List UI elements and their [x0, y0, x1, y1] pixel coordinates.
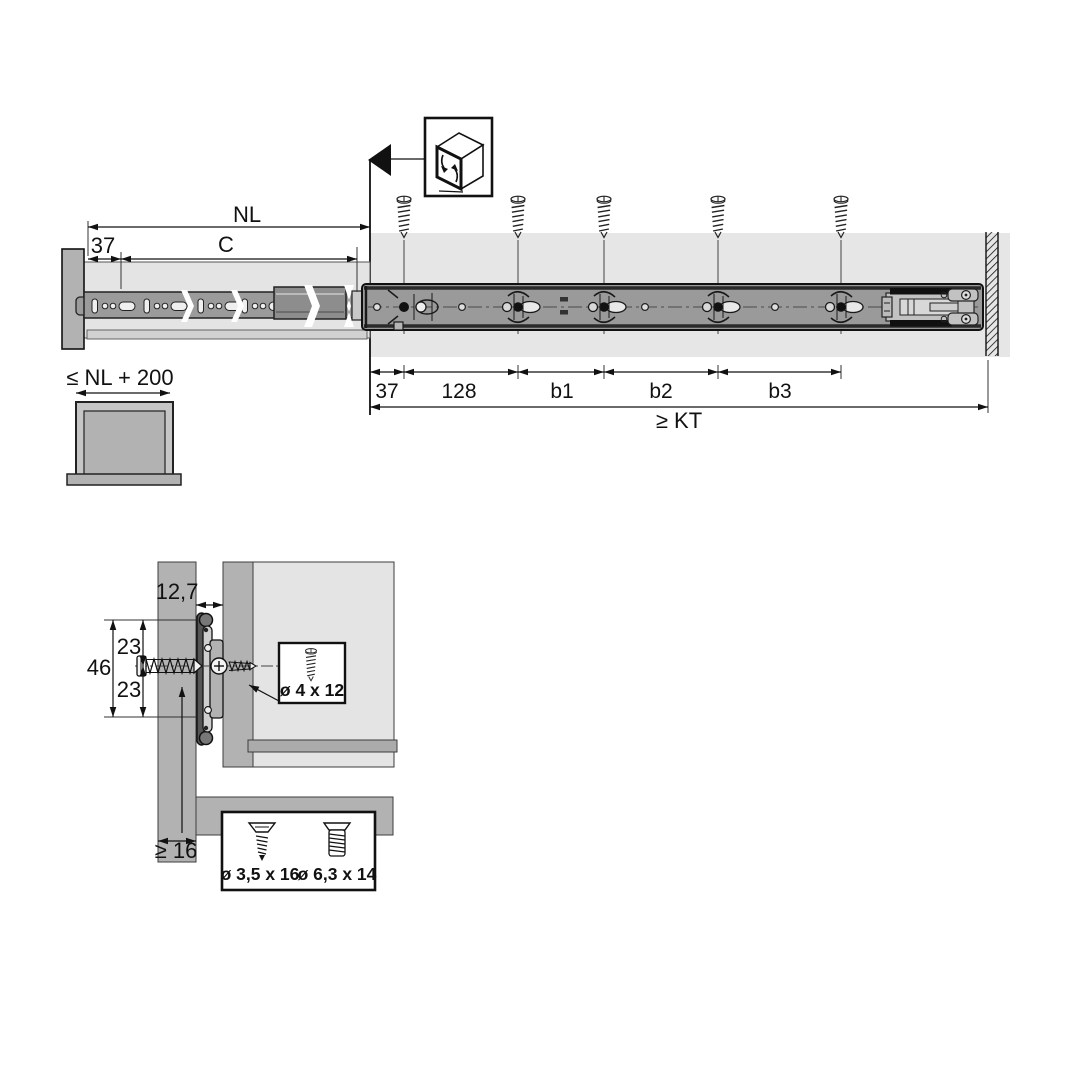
direction-marker-icon — [368, 144, 391, 176]
drawing-svg: NL 37 C 37 128 b1 b2 b3 ≥ KT ≤ NL + 200 … — [0, 0, 1080, 1080]
dim-label-b3: b3 — [768, 380, 791, 403]
drawer-bottom-shelf — [248, 740, 397, 752]
dim-label-46: 46 — [87, 655, 111, 680]
slide-cross-section — [197, 613, 223, 745]
top-view-figure — [62, 118, 1010, 485]
dim-label-37-front: 37 — [91, 233, 115, 258]
section-view-figure — [104, 562, 397, 890]
dim-label-c: C — [218, 232, 234, 257]
dim-label-gap: 12,7 — [156, 579, 199, 604]
dim-label-min16: ≥ 16 — [155, 838, 198, 863]
cabinet-back-wall — [986, 232, 998, 356]
dim-label-b1: b1 — [550, 380, 573, 403]
dim-label-23-bottom: 23 — [117, 677, 141, 702]
cabinet-rail — [362, 284, 983, 330]
screw-label-4x12: ø 4 x 12 — [280, 680, 344, 700]
technical-drawing-page: NL 37 C 37 128 b1 b2 b3 ≥ KT ≤ NL + 200 … — [0, 0, 1080, 1080]
dim-label-kt: ≥ KT — [656, 408, 702, 433]
dim-label-23-top: 23 — [117, 634, 141, 659]
cabinet-icon — [425, 118, 492, 196]
screw-label-63x14: ø 6,3 x 14 — [298, 864, 377, 884]
screw-label-35x16: ø 3,5 x 16 — [221, 864, 300, 884]
dimension-row-hole-pitch — [370, 365, 841, 379]
drawer-side-view — [62, 249, 370, 349]
dim-label-37: 37 — [375, 380, 398, 403]
rail-rear-mechanism — [882, 288, 978, 327]
dim-label-nl: NL — [233, 202, 261, 227]
cabinet-side-panel — [158, 562, 196, 862]
drawer-length-pictogram — [67, 393, 181, 485]
dim-label-drawer-max: ≤ NL + 200 — [66, 365, 173, 390]
dim-label-b2: b2 — [649, 380, 672, 403]
dim-label-128: 128 — [441, 380, 476, 403]
